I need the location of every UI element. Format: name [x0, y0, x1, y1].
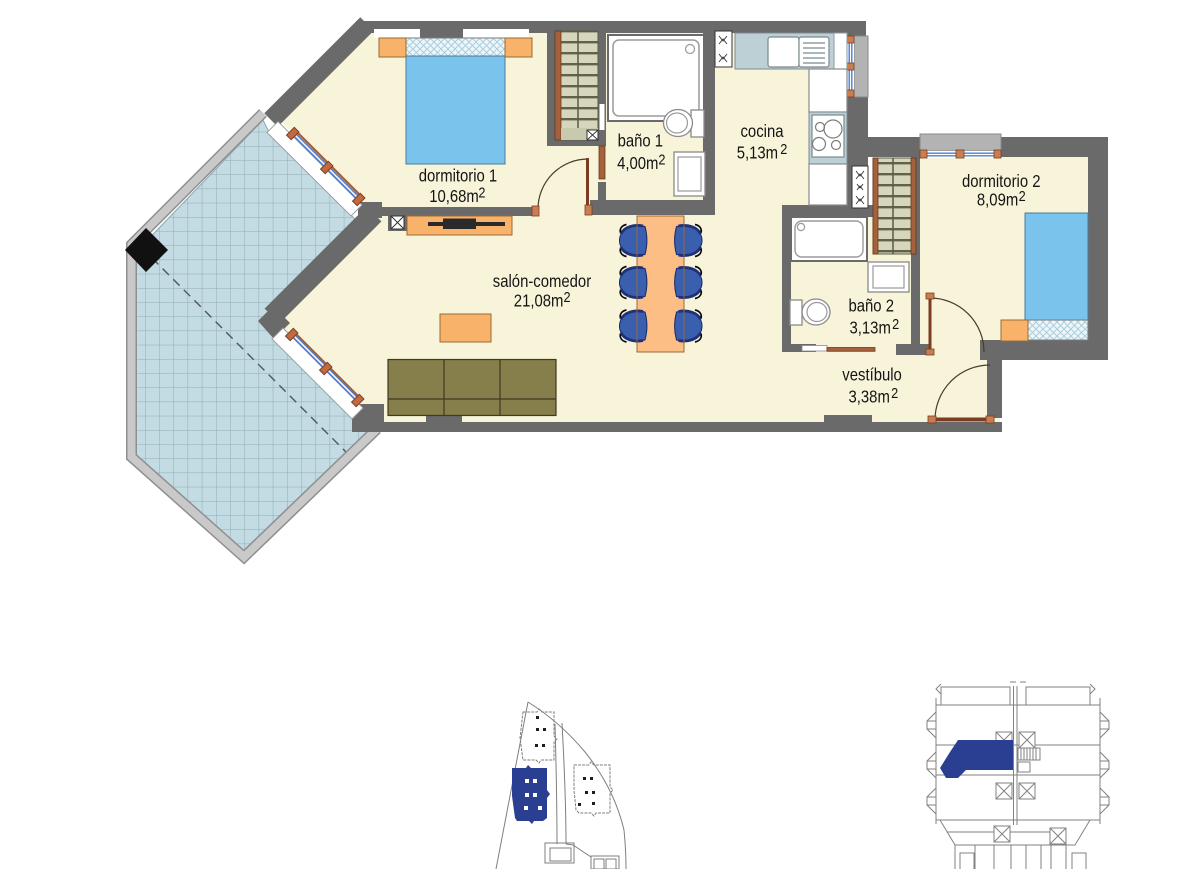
svg-text:2: 2 [780, 140, 787, 157]
svg-text:3,38m: 3,38m [849, 387, 890, 406]
svg-text:2: 2 [564, 288, 571, 305]
svg-text:2: 2 [478, 183, 485, 200]
svg-text:2: 2 [891, 384, 898, 401]
svg-text:baño 1: baño 1 [618, 131, 663, 150]
svg-text:cocina: cocina [741, 122, 785, 141]
svg-text:vestíbulo: vestíbulo [842, 365, 902, 384]
svg-text:2: 2 [1019, 187, 1026, 204]
svg-text:dormitorio 2: dormitorio 2 [962, 172, 1041, 191]
svg-text:2: 2 [892, 315, 899, 332]
svg-text:2: 2 [658, 150, 665, 167]
svg-text:3,13m: 3,13m [850, 318, 891, 337]
svg-text:21,08m: 21,08m [514, 291, 564, 310]
svg-text:salón-comedor: salón-comedor [493, 272, 592, 291]
svg-text:10,68m: 10,68m [429, 187, 479, 206]
svg-text:8,09m: 8,09m [977, 190, 1018, 209]
svg-text:4,00m: 4,00m [617, 154, 658, 173]
svg-text:baño 2: baño 2 [849, 296, 894, 315]
svg-text:5,13m: 5,13m [737, 143, 778, 162]
